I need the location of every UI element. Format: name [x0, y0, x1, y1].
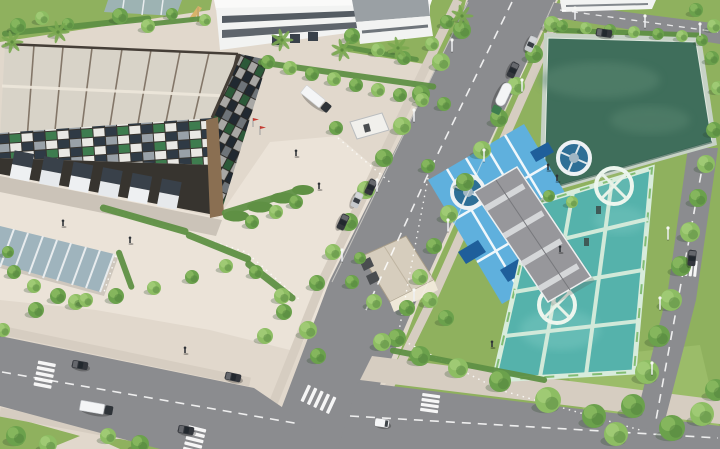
aerial-rendering: Aerial 3D architectural rendering of an … [0, 0, 720, 449]
clarifier-tank [558, 142, 590, 174]
circular-pool [596, 168, 632, 204]
rendering-canvas [0, 0, 720, 449]
